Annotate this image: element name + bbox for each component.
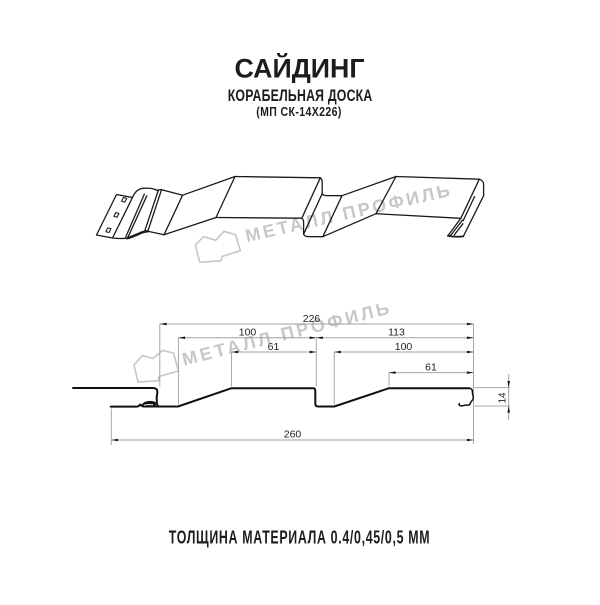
svg-text:61: 61 (268, 341, 280, 353)
svg-text:САЙДИНГ: САЙДИНГ (235, 53, 365, 84)
svg-text:113: 113 (388, 327, 405, 339)
svg-text:100: 100 (239, 327, 257, 339)
svg-text:260: 260 (284, 429, 302, 441)
svg-text:(МП СК-14Х226): (МП СК-14Х226) (256, 105, 341, 119)
svg-text:61: 61 (425, 361, 437, 373)
svg-text:226: 226 (303, 313, 321, 325)
svg-text:КОРАБЕЛЬНАЯ ДОСКА: КОРАБЕЛЬНАЯ ДОСКА (228, 87, 373, 105)
svg-text:100: 100 (395, 341, 413, 353)
svg-text:14: 14 (498, 392, 509, 404)
svg-text:ТОЛЩИНА МАТЕРИАЛА 0.4/0,45/0,5: ТОЛЩИНА МАТЕРИАЛА 0.4/0,45/0,5 ММ (169, 528, 430, 548)
